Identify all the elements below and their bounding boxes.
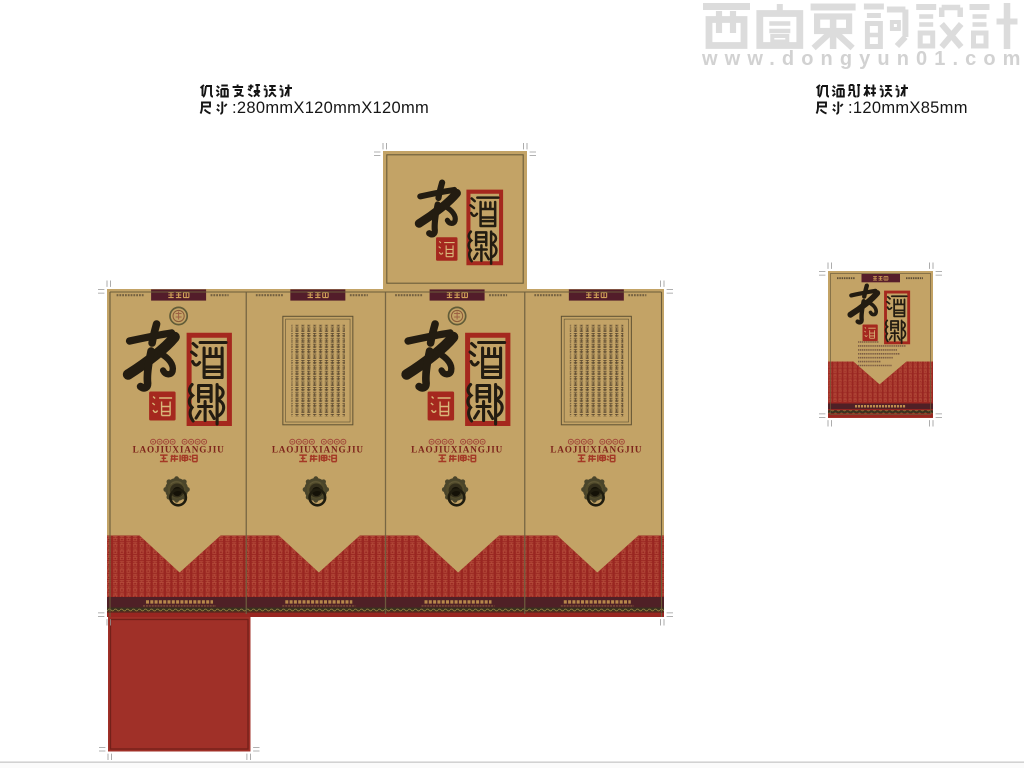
svg-text::120mmX85mm: :120mmX85mm: [848, 99, 968, 117]
svg-text::280mmX120mmX120mm: :280mmX120mmX120mm: [232, 99, 429, 117]
svg-text:www.dongyun01.com: www.dongyun01.com: [701, 48, 1024, 70]
